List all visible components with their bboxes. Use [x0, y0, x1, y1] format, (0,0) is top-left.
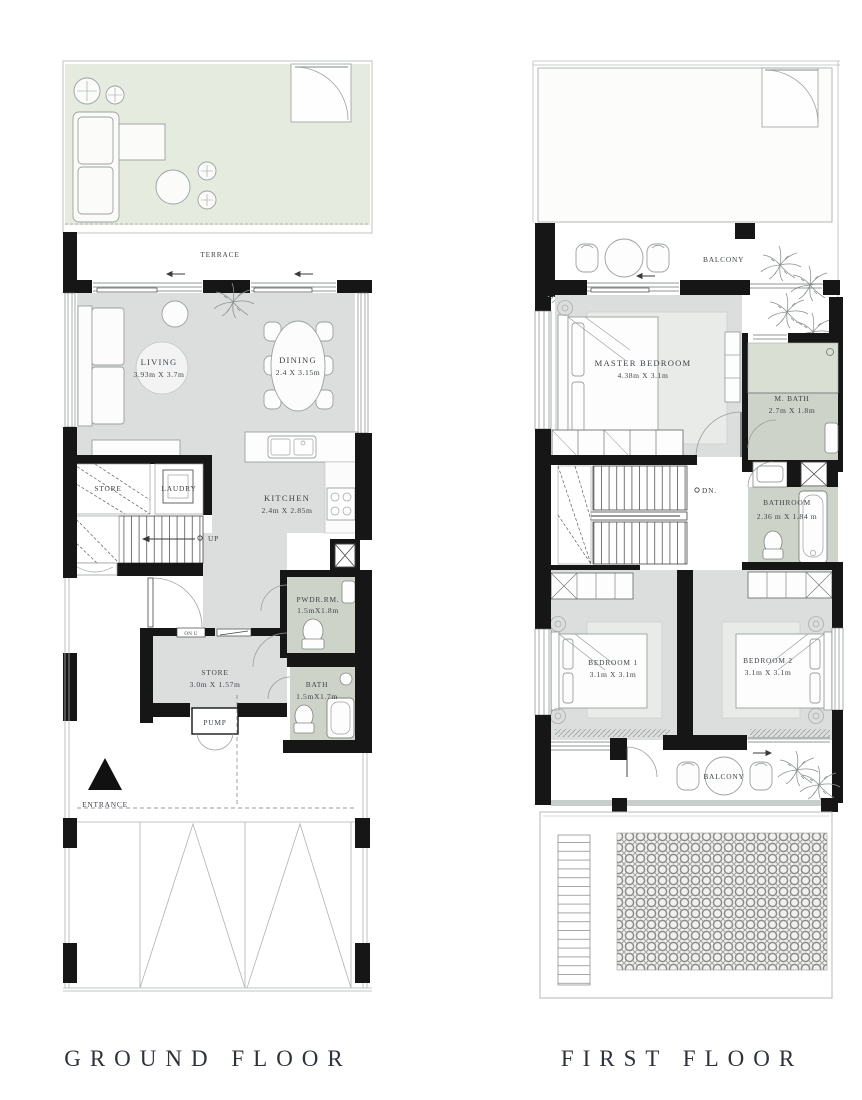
pwdr-sink [342, 581, 355, 603]
terrace-garden [63, 61, 372, 233]
bedroom-divider-wall [677, 570, 693, 740]
ground-floor-title: GROUND FLOOR [47, 1046, 369, 1072]
dining-label: DINING [279, 355, 317, 365]
tv-console [92, 440, 180, 457]
store2-label: STORE [201, 668, 228, 677]
side-table [162, 301, 188, 327]
first-floor-plan: BALCONY MASTER BEDROOM 4.38m X 3.1m [525, 50, 847, 1015]
bath-toilet [294, 705, 314, 733]
bathroom-dims: 2.36 m X 1.84 m [757, 512, 817, 521]
bedroom2 [693, 570, 832, 740]
bathroom-toilet [763, 531, 783, 559]
stairs-down [550, 455, 699, 577]
kitchen-counter [245, 432, 357, 462]
laundry-label: LAUDRY [161, 484, 196, 493]
first-floor-title: FIRST FLOOR [521, 1046, 843, 1072]
entrance-label: ENTRANCE [82, 800, 128, 809]
garden-door [291, 64, 351, 122]
bedroom1-dims: 3.1m X 3.1m [590, 670, 637, 679]
up-label: UP [208, 534, 219, 543]
balcony-table [605, 239, 643, 277]
master-wardrobe [552, 430, 683, 457]
pergola-trellis [617, 833, 827, 970]
door-slide-arrow [753, 751, 771, 756]
pump-label: PUMP [203, 718, 226, 727]
sliding-door-panel [591, 288, 649, 292]
living-label: LIVING [141, 357, 178, 367]
roof-door [762, 68, 818, 127]
door-slide-arrow [637, 274, 655, 279]
ground-floor-plan: TERRACE LIVING 3.93m X 3.7 [55, 50, 377, 1000]
stair-block [70, 455, 212, 576]
sliding-door-panel [254, 288, 312, 292]
window-seat [73, 563, 117, 575]
living-rug [136, 342, 188, 394]
dining-dims: 2.4 X 3.15m [276, 368, 321, 377]
bath-dims: 1.5mX1.7m [296, 692, 338, 701]
pwdr-dims: 1.5mX1.8m [297, 606, 339, 615]
shower-area [748, 343, 838, 393]
front-door [148, 578, 202, 627]
floorplan-sheet: TERRACE LIVING 3.93m X 3.7 [0, 0, 862, 1100]
dn-label: DN. [702, 486, 717, 495]
bedroom2-wardrobe [748, 572, 832, 598]
bath-label: BATH [306, 680, 329, 689]
store1-label: STORE [94, 484, 121, 493]
stairs-up [119, 516, 203, 563]
living-dims: 3.93m X 3.7m [133, 370, 184, 379]
pwdr-toilet [302, 619, 324, 649]
balcony-plant [761, 246, 801, 281]
bath-sink [340, 673, 352, 685]
shaft [330, 539, 360, 572]
balcony-bottom-label: BALCONY [703, 772, 744, 781]
pwdr-label: PWDR.RM. [297, 595, 340, 604]
master-label: MASTER BEDROOM [595, 358, 692, 368]
master-dims: 4.38m X 3.1m [617, 371, 668, 380]
kitchen-label: KITCHEN [264, 493, 310, 503]
dining-set [264, 321, 333, 411]
mbath-sink [825, 423, 838, 453]
mbath-dims: 2.7m X 1.8m [769, 406, 816, 415]
terrace-label: TERRACE [200, 250, 239, 259]
bedroom1-label: BEDROOM 1 [588, 658, 638, 667]
balcony-bottom [535, 730, 843, 806]
onu-label: ON U [184, 632, 197, 637]
pergola-ladder [558, 835, 590, 985]
bedroom1 [551, 570, 678, 740]
balcony-door [627, 747, 657, 777]
store2-dims: 3.0m X 1.57m [189, 680, 240, 689]
bedroom2-label: BEDROOM 2 [743, 656, 793, 665]
sliding-door-panel [97, 288, 157, 292]
mbath-label: M. BATH [774, 394, 809, 403]
bathroom-label: BATHROOM [763, 498, 811, 507]
kitchen-dims: 2.4m X 2.85m [261, 506, 312, 515]
bathroom-sink [757, 466, 783, 482]
bedroom2-dims: 3.1m X 3.1m [745, 668, 792, 677]
terrace-plant [768, 293, 808, 328]
bedroom1-wardrobe [551, 573, 633, 599]
pergola [540, 798, 838, 998]
door-slide-arrow [167, 272, 313, 277]
balcony-top-label: BALCONY [703, 255, 744, 264]
balcony-top [535, 223, 840, 303]
dresser [725, 332, 740, 402]
bathroom-shaft [801, 462, 827, 486]
stove [327, 488, 355, 520]
